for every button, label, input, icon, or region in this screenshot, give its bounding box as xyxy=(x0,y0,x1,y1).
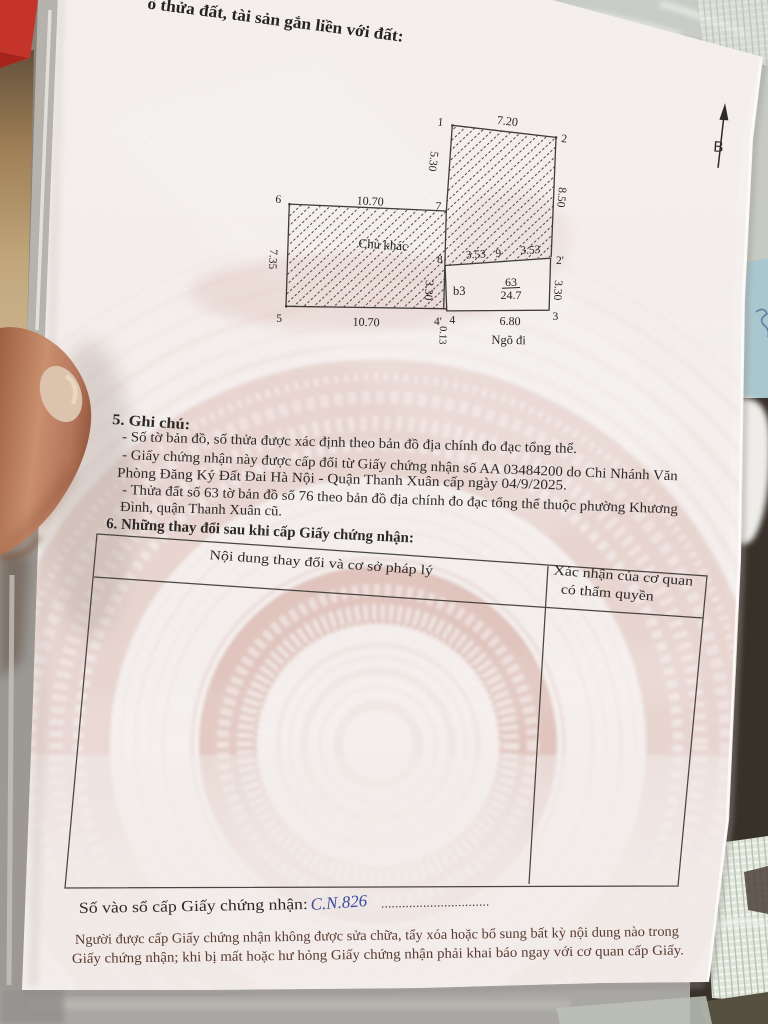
svg-text:63: 63 xyxy=(505,275,517,289)
svg-text:2': 2' xyxy=(556,255,564,267)
svg-text:0.13: 0.13 xyxy=(436,326,448,345)
svg-text:3: 3 xyxy=(553,311,559,323)
svg-text:7.35: 7.35 xyxy=(266,249,279,270)
svg-text:3.53: 3.53 xyxy=(465,248,486,261)
svg-text:B: B xyxy=(713,138,724,156)
svg-text:10.70: 10.70 xyxy=(356,193,384,208)
svg-text:7.20: 7.20 xyxy=(496,113,518,129)
svg-text:Ngõ đi: Ngõ đi xyxy=(491,333,526,348)
svg-text:24.7: 24.7 xyxy=(501,288,522,302)
svg-text:C.N.826: C.N.826 xyxy=(310,891,368,914)
svg-text:3.30: 3.30 xyxy=(422,280,435,301)
svg-text:9: 9 xyxy=(495,248,502,260)
svg-text:8.50: 8.50 xyxy=(554,187,568,208)
svg-text:3.30: 3.30 xyxy=(551,280,564,301)
svg-text:3.53: 3.53 xyxy=(520,244,541,257)
svg-text:4: 4 xyxy=(450,315,456,327)
svg-text:Chủ khác: Chủ khác xyxy=(358,236,409,254)
svg-text:8: 8 xyxy=(437,254,443,266)
svg-text:5.30: 5.30 xyxy=(426,151,440,173)
svg-text:6.80: 6.80 xyxy=(499,314,520,328)
svg-text:6: 6 xyxy=(275,194,282,206)
svg-text:10.70: 10.70 xyxy=(352,315,379,330)
svg-text:b3: b3 xyxy=(453,284,466,298)
svg-text:5: 5 xyxy=(276,313,282,325)
